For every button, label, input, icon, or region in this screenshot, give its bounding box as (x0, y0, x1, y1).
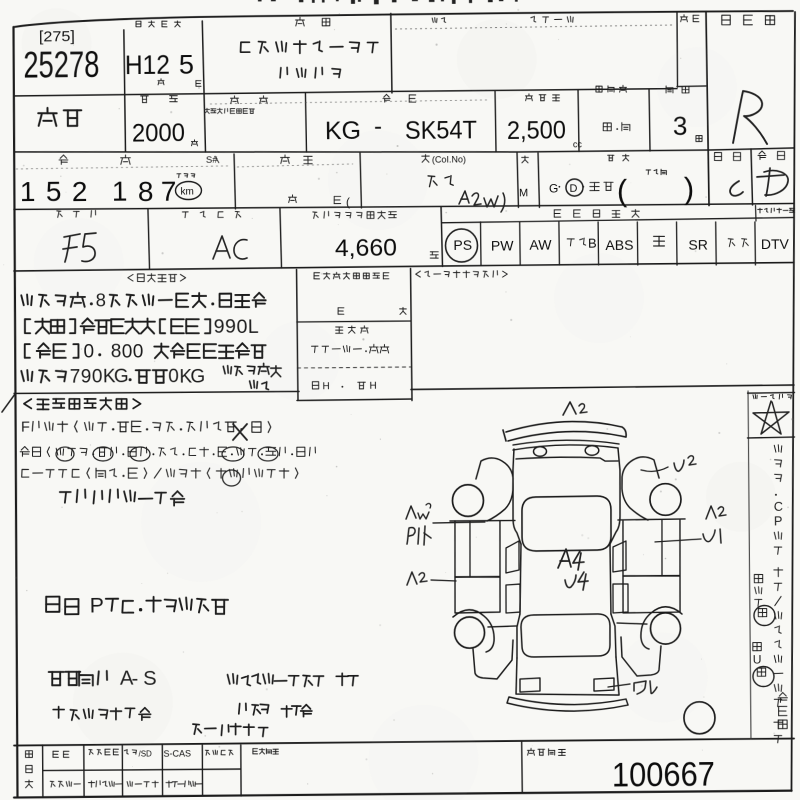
svg-text:): ) (684, 171, 695, 206)
svg-text:9: 9 (81, 366, 92, 387)
svg-text:P: P (90, 594, 104, 618)
svg-text:0: 0 (122, 341, 133, 362)
svg-text:(: ( (617, 173, 628, 208)
svg-text:B: B (588, 235, 597, 250)
svg-text:8: 8 (111, 341, 122, 362)
svg-text:7: 7 (161, 176, 177, 207)
svg-text:G: G (114, 366, 129, 387)
svg-text:2: 2 (72, 176, 88, 207)
svg-text:cc: cc (573, 139, 583, 149)
svg-text:PW: PW (491, 237, 514, 253)
svg-text:(CoI.No): (CoI.No) (432, 154, 466, 164)
svg-text:G: G (190, 366, 205, 387)
svg-text:F: F (21, 419, 30, 435)
svg-text:100667: 100667 (612, 755, 715, 794)
svg-text:9: 9 (225, 316, 236, 338)
svg-text:5: 5 (179, 49, 194, 79)
svg-text:0: 0 (236, 316, 247, 338)
svg-text:S-CAS: S-CAS (163, 749, 191, 759)
svg-text:0: 0 (92, 366, 103, 387)
svg-text:1: 1 (20, 176, 36, 207)
svg-text:7: 7 (70, 366, 81, 387)
svg-text:0: 0 (133, 341, 144, 362)
svg-text:P: P (774, 514, 783, 528)
svg-text:DTV: DTV (761, 236, 790, 252)
svg-text:SK54T: SK54T (405, 116, 477, 145)
svg-text:AW: AW (529, 237, 552, 253)
svg-text:M: M (519, 187, 528, 199)
svg-text:S#: S# (206, 155, 218, 166)
svg-text:km: km (180, 186, 193, 197)
svg-text:H: H (369, 381, 376, 392)
svg-text:U: U (753, 653, 762, 667)
svg-text:9: 9 (214, 316, 225, 338)
svg-text:0: 0 (168, 366, 179, 387)
svg-text:L: L (248, 316, 259, 338)
svg-text:D: D (569, 183, 577, 195)
svg-text:G: G (549, 181, 558, 195)
svg-text:1: 1 (112, 176, 128, 207)
svg-text:PS: PS (453, 237, 472, 253)
svg-text:ABS: ABS (605, 237, 633, 253)
svg-text:2000: 2000 (132, 119, 185, 148)
svg-text:H12: H12 (125, 50, 170, 80)
svg-text:5: 5 (46, 176, 62, 207)
svg-text:/SD: /SD (138, 749, 152, 758)
svg-text:4,660: 4,660 (335, 234, 397, 262)
svg-text:SR: SR (688, 236, 708, 252)
svg-text:8: 8 (138, 176, 154, 207)
svg-text:2,500: 2,500 (507, 116, 566, 145)
svg-text:0: 0 (83, 341, 94, 362)
